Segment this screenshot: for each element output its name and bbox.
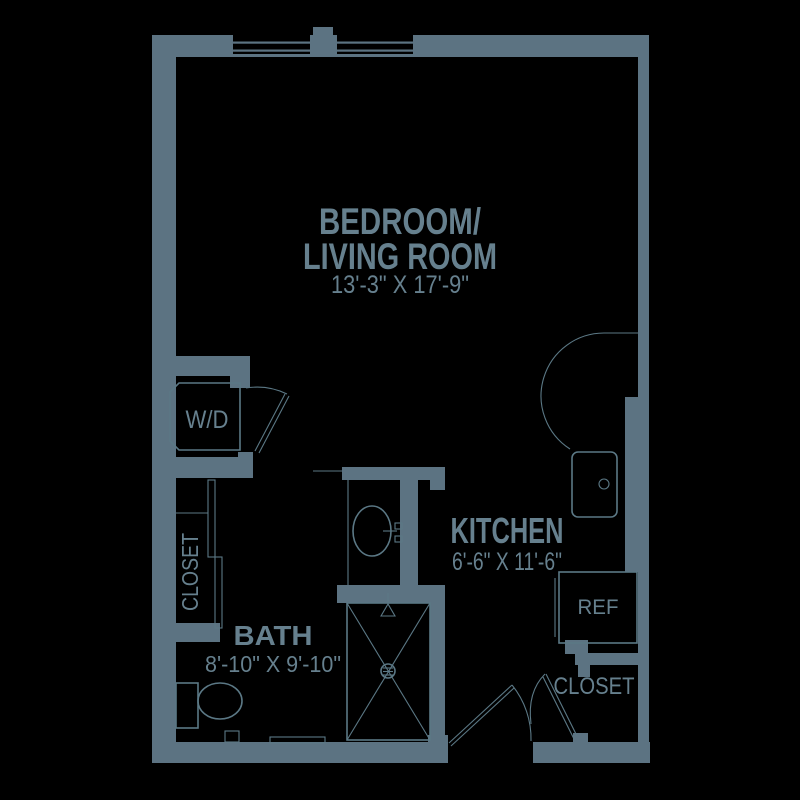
- wall-entry-closet-top: [575, 653, 649, 665]
- closet-left-slider-panel-2: [215, 557, 222, 628]
- bath-label: BATH: [234, 620, 313, 651]
- closet-left-slider-panel-1: [208, 480, 215, 557]
- entry-door-leaf-line-2: [451, 688, 514, 746]
- toilet-tank: [176, 683, 198, 728]
- living-room-dimensions: 13'-3" X 17'-9": [331, 271, 469, 299]
- window-2: [337, 42, 413, 58]
- wall-wd-alcove-top: [152, 356, 250, 376]
- wall-wd-jamb-bottom: [238, 452, 253, 478]
- kitchen-sink: [572, 452, 617, 517]
- wd-closet-door: [246, 387, 289, 453]
- floor-plan-page: BEDROOM/ LIVING ROOM 13'-3" X 17'-9" KIT…: [0, 0, 800, 800]
- kitchen-curved-counter: [541, 333, 638, 449]
- bath-floor-fixture: [225, 731, 239, 742]
- kitchen-sink-basin: [572, 452, 617, 517]
- wall-bottom-right-segment: [533, 742, 650, 763]
- window-1-sill-line: [233, 54, 310, 57]
- wd-door-leaf-line-1: [255, 394, 285, 451]
- wd-door-leaf-line-2: [259, 396, 289, 453]
- wall-top-center-pier: [310, 35, 337, 57]
- entry-door-swing-arc: [512, 685, 531, 741]
- toilet: [176, 683, 242, 728]
- window-2-sill-line: [337, 54, 413, 57]
- closet-entry-label: CLOSET: [554, 673, 635, 700]
- wall-vanity-top-jamb: [430, 478, 445, 490]
- window-1-outer-line: [233, 42, 310, 44]
- shower-head-icon: [381, 604, 395, 616]
- wall-shower-top: [337, 585, 445, 603]
- bath-dimensions: 8'-10" X 9'-10": [205, 651, 341, 677]
- wall-shower-right: [430, 603, 445, 743]
- kitchen-dimensions: 6'-6" X 11'-6": [452, 548, 562, 576]
- wall-bottom-left-segment: [152, 742, 448, 763]
- wall-left: [152, 35, 176, 763]
- window-1-inner-line: [233, 50, 310, 52]
- washer-dryer-label: W/D: [186, 406, 229, 434]
- wd-door-swing-arc: [246, 387, 287, 394]
- kitchen-label: KITCHEN: [451, 510, 564, 551]
- entry-closet-door-swing-arc: [530, 674, 545, 724]
- wall-top-pier-bump: [313, 27, 333, 36]
- wall-top-right-segment: [413, 35, 649, 57]
- kitchen-counter-band: [625, 397, 638, 572]
- window-1: [233, 42, 310, 58]
- shower: [347, 593, 430, 740]
- closet-left-label: CLOSET: [177, 533, 203, 611]
- wall-vanity-kitchen-divider: [400, 480, 418, 585]
- wall-closet-left-bottom: [152, 623, 220, 642]
- toilet-bowl: [198, 683, 242, 719]
- wall-right: [638, 35, 649, 743]
- window-2-inner-line: [337, 50, 413, 52]
- entry-door: [449, 685, 531, 746]
- kitchen-sink-drain: [599, 479, 609, 489]
- entry-door-leaf-line-1: [449, 685, 512, 743]
- wall-entry-closet-stub: [565, 640, 588, 654]
- window-2-outer-line: [337, 42, 413, 44]
- wall-entry-closet-jamb-lower: [573, 733, 588, 742]
- floor-plan: BEDROOM/ LIVING ROOM 13'-3" X 17'-9" KIT…: [0, 0, 800, 800]
- wall-wd-alcove-bottom: [152, 457, 238, 478]
- refrigerator-label: REF: [578, 596, 619, 619]
- vanity-faucet: [383, 523, 402, 542]
- wall-vanity-top: [342, 467, 445, 480]
